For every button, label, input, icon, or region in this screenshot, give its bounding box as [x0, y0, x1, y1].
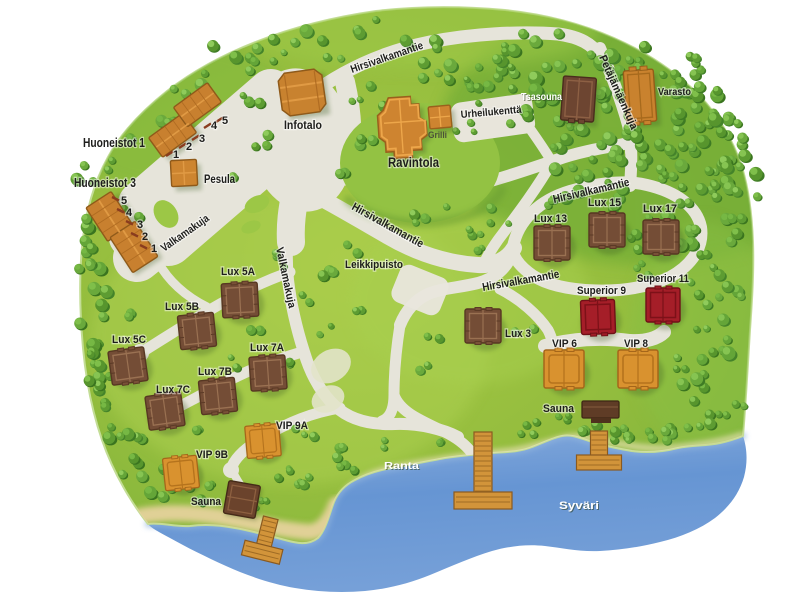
- svg-text:Infotalo: Infotalo: [284, 120, 322, 132]
- svg-text:VIP 9A: VIP 9A: [276, 420, 308, 432]
- svg-text:4: 4: [126, 207, 133, 219]
- svg-text:Sauna: Sauna: [191, 496, 222, 508]
- svg-text:Lux 5B: Lux 5B: [165, 301, 199, 313]
- svg-text:Pesula: Pesula: [204, 174, 236, 186]
- svg-text:Ravintola: Ravintola: [388, 155, 439, 170]
- svg-text:Lux 5A: Lux 5A: [221, 266, 255, 278]
- svg-text:Varasto: Varasto: [658, 86, 691, 98]
- svg-text:4: 4: [211, 120, 218, 132]
- svg-text:Leikkipuisto: Leikkipuisto: [345, 259, 403, 271]
- svg-text:VIP 6: VIP 6: [552, 338, 577, 350]
- svg-text:Tsasouna: Tsasouna: [521, 91, 562, 103]
- svg-text:Syväri: Syväri: [559, 500, 599, 512]
- svg-text:Superior 11: Superior 11: [637, 273, 689, 285]
- svg-text:1: 1: [151, 243, 157, 255]
- svg-text:5: 5: [121, 195, 127, 207]
- svg-text:3: 3: [137, 219, 143, 231]
- svg-text:Huoneistot 3: Huoneistot 3: [74, 176, 136, 190]
- svg-text:Lux 13: Lux 13: [534, 213, 567, 225]
- svg-text:5: 5: [222, 115, 228, 127]
- svg-text:3: 3: [199, 133, 205, 145]
- svg-text:Grilli: Grilli: [428, 130, 447, 141]
- svg-text:Lux 17: Lux 17: [643, 203, 677, 215]
- svg-text:Sauna: Sauna: [543, 403, 575, 415]
- svg-text:2: 2: [186, 141, 192, 153]
- svg-text:VIP 9B: VIP 9B: [196, 449, 228, 461]
- svg-text:Lux 7C: Lux 7C: [156, 384, 190, 396]
- svg-text:Lux 3: Lux 3: [505, 328, 531, 340]
- svg-text:1: 1: [173, 149, 179, 161]
- svg-text:Lux 5C: Lux 5C: [112, 334, 146, 346]
- svg-text:Superior 9: Superior 9: [577, 285, 626, 297]
- svg-text:2: 2: [142, 231, 148, 243]
- svg-text:Lux 15: Lux 15: [588, 197, 621, 209]
- svg-text:Lux 7A: Lux 7A: [250, 342, 284, 354]
- svg-text:VIP 8: VIP 8: [624, 338, 648, 350]
- svg-text:Ranta: Ranta: [384, 460, 419, 472]
- svg-text:Huoneistot 1: Huoneistot 1: [83, 136, 145, 150]
- svg-text:Lux 7B: Lux 7B: [198, 366, 232, 378]
